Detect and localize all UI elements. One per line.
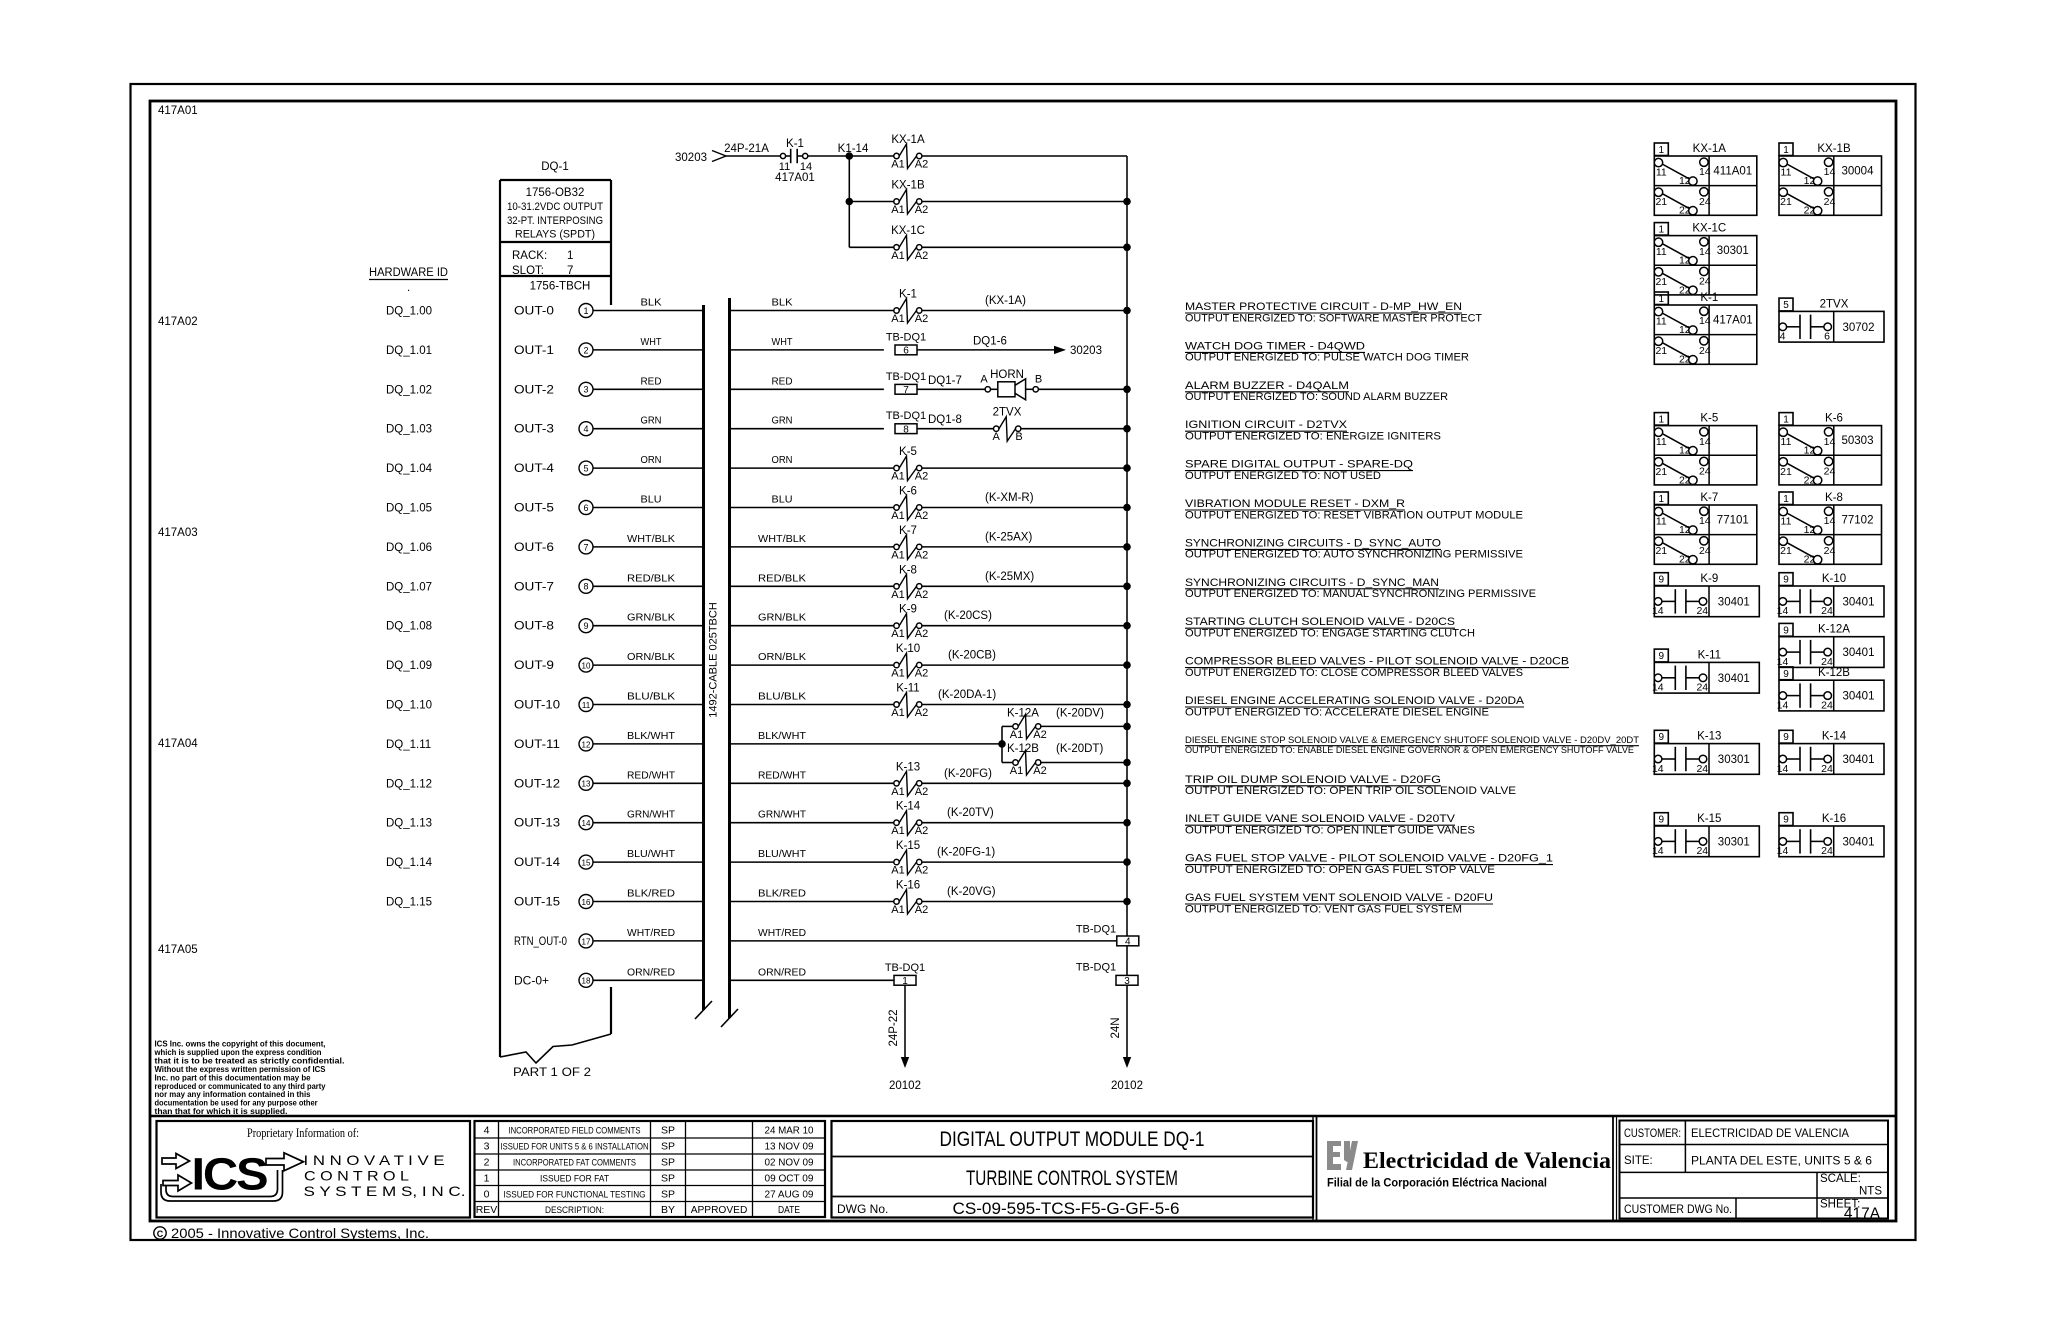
svg-text:OUTPUT ENERGIZED TO: SOUND ALA: OUTPUT ENERGIZED TO: SOUND ALARM BUZZER	[1185, 391, 1448, 403]
svg-text:DQ_1.08: DQ_1.08	[386, 621, 432, 633]
svg-text:K-9: K-9	[899, 604, 917, 616]
svg-text:9: 9	[583, 621, 588, 631]
svg-text:K-12B: K-12B	[1007, 743, 1039, 755]
svg-text:12: 12	[1804, 175, 1816, 187]
svg-text:MASTER PROTECTIVE CIRCUIT -: MASTER PROTECTIVE CIRCUIT - D-MP_HW_EN	[1185, 301, 1462, 313]
svg-text:K-16: K-16	[1822, 813, 1846, 825]
svg-text:OUTPUT ENERGIZED TO: AUTO SYNC: OUTPUT ENERGIZED TO: AUTO SYNCHRONIZING …	[1185, 549, 1523, 561]
svg-text:Proprietary Information of:: Proprietary Information of:	[247, 1125, 359, 1140]
svg-text:OUT-11: OUT-11	[514, 739, 560, 751]
svg-text:24: 24	[1696, 763, 1708, 775]
svg-text:7: 7	[583, 542, 588, 552]
svg-text:NTS: NTS	[1859, 1186, 1882, 1198]
svg-text:K-13: K-13	[1697, 731, 1721, 743]
svg-text:TURBINE CONTROL SYSTEM: TURBINE CONTROL SYSTEM	[966, 1167, 1178, 1190]
svg-text:22: 22	[1804, 474, 1816, 486]
svg-text:27 AUG 09: 27 AUG 09	[765, 1190, 814, 1201]
svg-text:A1: A1	[891, 471, 904, 483]
svg-text:SP: SP	[661, 1157, 675, 1169]
svg-text:GRN/BLK: GRN/BLK	[758, 612, 806, 624]
svg-text:TB-DQ1: TB-DQ1	[1076, 923, 1116, 935]
svg-text:A2: A2	[915, 589, 928, 601]
svg-text:I N N O V A T I V E: I N N O V A T I V E	[304, 1152, 445, 1168]
svg-text:INCORPORATED FIELD COMMENTS: INCORPORATED FIELD COMMENTS	[509, 1126, 641, 1136]
svg-text:BLU: BLU	[641, 494, 662, 506]
svg-text:21: 21	[1655, 345, 1667, 357]
svg-text:DQ_1.04: DQ_1.04	[386, 463, 433, 475]
svg-text:30004: 30004	[1842, 166, 1875, 178]
svg-text:WHT/BLK: WHT/BLK	[627, 533, 675, 545]
svg-text:TB-DQ1: TB-DQ1	[886, 371, 926, 383]
svg-text:22: 22	[1679, 354, 1691, 366]
svg-text:24: 24	[1821, 656, 1833, 668]
svg-text:OUT-14: OUT-14	[514, 857, 561, 869]
svg-text:15: 15	[582, 859, 591, 868]
svg-text:A: A	[980, 373, 988, 385]
svg-text:8: 8	[903, 424, 909, 435]
svg-text:77101: 77101	[1717, 515, 1749, 527]
svg-text:BY: BY	[661, 1204, 675, 1216]
svg-text:22: 22	[1679, 284, 1691, 296]
svg-text:21: 21	[1780, 466, 1792, 478]
svg-text:RED/WHT: RED/WHT	[627, 769, 676, 781]
svg-text:DQ_1.13: DQ_1.13	[386, 818, 432, 830]
svg-text:GAS FUEL STOP VALVE - PILOT SO: GAS FUEL STOP VALVE - PILOT SOLENOID VAL…	[1185, 853, 1553, 865]
svg-text:OUT-1: OUT-1	[514, 345, 554, 357]
svg-text:OUTPUT ENERGIZED TO: SOFTWARE: OUTPUT ENERGIZED TO: SOFTWARE MASTER PRO…	[1185, 312, 1482, 324]
svg-text:24: 24	[1696, 845, 1708, 857]
svg-text:24P-21A: 24P-21A	[724, 143, 769, 155]
svg-text:KX-1B: KX-1B	[1817, 143, 1851, 155]
svg-text:ALARM BUZZER - D4QALM: ALARM BUZZER - D4QALM	[1185, 380, 1349, 392]
svg-text:3: 3	[484, 1141, 490, 1153]
svg-text:PLANTA DEL ESTE, UNITS 5: PLANTA DEL ESTE, UNITS 5 & 6	[1691, 1156, 1872, 1168]
svg-text:21: 21	[1655, 276, 1667, 288]
svg-text:K-10: K-10	[1822, 573, 1846, 585]
svg-text:BLK/RED: BLK/RED	[627, 888, 675, 900]
svg-text:HARDWARE ID: HARDWARE ID	[369, 267, 448, 279]
svg-text:WHT/BLK: WHT/BLK	[758, 533, 806, 545]
svg-text:C O N T R O L: C O N T R O L	[304, 1168, 409, 1184]
svg-text:BLK: BLK	[772, 297, 793, 309]
svg-text:K-1: K-1	[1700, 292, 1718, 304]
svg-text:24: 24	[1821, 845, 1833, 857]
svg-text:12: 12	[582, 740, 591, 749]
svg-text:30401: 30401	[1843, 836, 1875, 848]
svg-text:K-10: K-10	[896, 643, 920, 655]
svg-text:OUT-0: OUT-0	[514, 306, 554, 318]
svg-text:11: 11	[1781, 167, 1792, 179]
svg-text:A1: A1	[1010, 765, 1023, 777]
svg-text:K-6: K-6	[1825, 413, 1843, 425]
svg-text:A2: A2	[1033, 729, 1046, 741]
svg-text:24: 24	[1824, 196, 1836, 208]
svg-text:(K-20CS): (K-20CS)	[944, 610, 992, 622]
svg-text:A1: A1	[891, 904, 904, 916]
svg-text:PART 1 OF 2: PART 1 OF 2	[513, 1067, 591, 1079]
svg-text:22: 22	[1679, 205, 1691, 217]
svg-text:7: 7	[567, 265, 573, 277]
svg-text:RED/WHT: RED/WHT	[758, 769, 807, 781]
svg-text:OUTPUT ENERGIZED TO: RESET VIB: OUTPUT ENERGIZED TO: RESET VIBRATION OUT…	[1185, 509, 1523, 521]
svg-text:INCORPORATED FAT COMMENTS: INCORPORATED FAT COMMENTS	[513, 1158, 636, 1168]
svg-text:9: 9	[1659, 732, 1665, 743]
svg-text:A1: A1	[1010, 729, 1023, 741]
svg-text:(KX-1A): (KX-1A)	[985, 295, 1026, 307]
svg-text:K-8: K-8	[899, 564, 917, 576]
svg-text:DQ1-6: DQ1-6	[973, 335, 1007, 347]
svg-text:(K-20DT): (K-20DT)	[1056, 743, 1103, 755]
svg-text:DQ_1.00: DQ_1.00	[386, 306, 432, 318]
svg-text:OUT-6: OUT-6	[514, 542, 554, 554]
svg-text:DQ_1.03: DQ_1.03	[386, 424, 432, 436]
svg-text:A2: A2	[915, 313, 928, 325]
svg-text:10: 10	[582, 662, 591, 671]
svg-text:DIGITAL OUTPUT MODULE DQ-1: DIGITAL OUTPUT MODULE DQ-1	[940, 1128, 1205, 1151]
svg-text:14: 14	[1777, 763, 1789, 775]
svg-text:A2: A2	[915, 668, 928, 680]
svg-text:2: 2	[484, 1157, 490, 1169]
svg-text:1: 1	[583, 306, 588, 316]
svg-text:24P-22: 24P-22	[888, 1009, 900, 1046]
svg-text:7: 7	[903, 385, 909, 396]
svg-text:SYNCHRONIZING CIRCUITS - D_S: SYNCHRONIZING CIRCUITS - D_SYNC_MAN	[1185, 577, 1439, 589]
svg-text:A2: A2	[915, 510, 928, 522]
svg-text:BLK: BLK	[641, 297, 662, 309]
svg-text:6: 6	[583, 503, 588, 513]
svg-text:OUTPUT ENERGIZED TO: PULSE WAT: OUTPUT ENERGIZED TO: PULSE WATCH DOG TIM…	[1185, 352, 1469, 364]
svg-text:WHT/RED: WHT/RED	[627, 927, 675, 939]
svg-text:14: 14	[1777, 605, 1789, 617]
svg-text:K-14: K-14	[1822, 731, 1847, 743]
svg-text:11: 11	[1656, 167, 1667, 179]
svg-text:SYNCHRONIZING CIRCUITS - D_S: SYNCHRONIZING CIRCUITS - D_SYNC_AUTO	[1185, 537, 1441, 549]
svg-text:1492-CABLE 025TBCH: 1492-CABLE 025TBCH	[708, 602, 720, 718]
svg-text:K-9: K-9	[1700, 573, 1718, 585]
svg-text:DATE: DATE	[778, 1205, 800, 1216]
svg-text:RTN_OUT-0: RTN_OUT-0	[514, 936, 567, 948]
svg-text:APPROVED: APPROVED	[691, 1205, 748, 1216]
svg-text:11: 11	[1656, 316, 1667, 328]
svg-text:(K-20FG): (K-20FG)	[944, 768, 992, 780]
svg-text:14: 14	[1652, 682, 1664, 694]
svg-text:9: 9	[1659, 815, 1665, 826]
svg-text:11: 11	[1781, 436, 1792, 448]
svg-text:2: 2	[583, 345, 588, 355]
svg-text:TB-DQ1: TB-DQ1	[1076, 962, 1116, 974]
svg-text:VIBRATION MODULE RESET - DXM: VIBRATION MODULE RESET - DXM_R	[1185, 498, 1405, 510]
svg-text:32-PT. INTERPOSING: 32-PT. INTERPOSING	[507, 215, 603, 227]
svg-text:A2: A2	[915, 549, 928, 561]
svg-text:411A01: 411A01	[1713, 166, 1752, 178]
svg-text:K-14: K-14	[896, 801, 921, 813]
svg-text:A2: A2	[915, 825, 928, 837]
svg-text:4: 4	[1780, 331, 1786, 343]
svg-text:GRN/WHT: GRN/WHT	[627, 809, 676, 821]
svg-text:RACK:: RACK:	[512, 250, 547, 262]
svg-text:A1: A1	[891, 786, 904, 798]
svg-text:DIESEL ENGINE ACCELERATING SOL: DIESEL ENGINE ACCELERATING SOLENOID VALV…	[1185, 695, 1525, 707]
svg-text:OUT-10: OUT-10	[514, 700, 560, 712]
svg-text:9: 9	[1783, 815, 1789, 826]
svg-text:A2: A2	[915, 865, 928, 877]
svg-text:22: 22	[1679, 554, 1691, 566]
svg-text:WATCH DOG TIMER - D4QWD: WATCH DOG TIMER - D4QWD	[1185, 340, 1365, 352]
svg-text:INLET GUIDE VANE SOLENOID VALV: INLET GUIDE VANE SOLENOID VALVE - D20TV	[1185, 813, 1456, 825]
svg-text:417A04: 417A04	[158, 738, 198, 750]
svg-text:14: 14	[1777, 845, 1789, 857]
svg-text:ORN/BLK: ORN/BLK	[627, 651, 675, 663]
svg-text:K-8: K-8	[1825, 492, 1843, 504]
svg-text:22: 22	[1804, 554, 1816, 566]
svg-text:CS-09-595-TCS-F5-G-GF-5-6: CS-09-595-TCS-F5-G-GF-5-6	[953, 1200, 1180, 1218]
svg-text:K-1: K-1	[899, 289, 917, 301]
svg-text:417A05: 417A05	[158, 944, 198, 956]
svg-text:BLU/WHT: BLU/WHT	[758, 848, 807, 860]
svg-text:77102: 77102	[1842, 515, 1874, 527]
svg-text:GRN: GRN	[641, 415, 662, 427]
svg-text:BLU/BLK: BLU/BLK	[627, 691, 675, 703]
svg-text:14: 14	[1652, 605, 1664, 617]
svg-text:KX-1C: KX-1C	[1692, 223, 1726, 235]
svg-text:ORN: ORN	[772, 454, 793, 466]
svg-text:OUTPUT ENERGIZED TO: OPEN TRIP: OUTPUT ENERGIZED TO: OPEN TRIP OIL SOLEN…	[1185, 785, 1516, 797]
svg-text:RED/BLK: RED/BLK	[758, 572, 806, 584]
svg-text:WHT/RED: WHT/RED	[758, 927, 806, 939]
svg-text:12: 12	[1679, 324, 1691, 336]
svg-text:14: 14	[1699, 315, 1711, 327]
svg-text:S Y S T E M S, I N C.: S Y S T E M S, I N C.	[304, 1183, 466, 1199]
svg-text:K-7: K-7	[1700, 492, 1718, 504]
svg-text:OUTPUT ENERGIZED TO: VENT GAS: OUTPUT ENERGIZED TO: VENT GAS FUEL SYSTE…	[1185, 903, 1462, 915]
svg-text:DQ_1.10: DQ_1.10	[386, 700, 432, 712]
svg-text:13: 13	[582, 780, 591, 789]
svg-text:K-6: K-6	[899, 486, 917, 498]
svg-text:K-15: K-15	[896, 840, 920, 852]
svg-text:20102: 20102	[889, 1080, 921, 1092]
svg-text:24: 24	[1696, 605, 1708, 617]
svg-text:RED: RED	[772, 375, 793, 387]
svg-text:9: 9	[1783, 575, 1789, 586]
svg-text:SP: SP	[661, 1125, 675, 1137]
svg-text:SP: SP	[661, 1173, 675, 1185]
svg-text:B: B	[1015, 431, 1022, 443]
svg-text:12: 12	[1804, 445, 1816, 457]
svg-text:DWG No.: DWG No.	[837, 1202, 888, 1216]
svg-text:A1: A1	[891, 589, 904, 601]
svg-text:1: 1	[567, 250, 573, 262]
svg-text:GRN/WHT: GRN/WHT	[758, 809, 807, 821]
svg-text:K-7: K-7	[899, 525, 917, 537]
svg-text:1: 1	[484, 1173, 490, 1185]
svg-text:Electricidad de Valencia: Electricidad de Valencia	[1363, 1148, 1612, 1173]
svg-text:30401: 30401	[1843, 647, 1875, 659]
svg-text:A1: A1	[891, 865, 904, 877]
svg-text:9: 9	[1783, 669, 1789, 680]
svg-text:K-1: K-1	[786, 138, 804, 150]
svg-text:30401: 30401	[1718, 673, 1750, 685]
svg-text:12: 12	[1804, 524, 1816, 536]
svg-text:4: 4	[484, 1125, 490, 1137]
svg-text:DQ-1: DQ-1	[541, 161, 568, 173]
svg-text:A1: A1	[891, 825, 904, 837]
svg-text:14: 14	[1824, 166, 1836, 178]
svg-text:ORN/BLK: ORN/BLK	[758, 651, 806, 663]
svg-text:OUT-7: OUT-7	[514, 581, 554, 593]
svg-text:417A01: 417A01	[1713, 315, 1753, 327]
svg-text:11: 11	[1656, 436, 1667, 448]
svg-text:A1: A1	[891, 159, 904, 171]
svg-text:5: 5	[583, 464, 588, 474]
svg-text:BLU: BLU	[772, 494, 793, 506]
svg-text:417A03: 417A03	[158, 527, 198, 539]
svg-text:1: 1	[1659, 145, 1665, 156]
svg-text:(K-25AX): (K-25AX)	[985, 531, 1032, 543]
svg-text:K-5: K-5	[1700, 413, 1718, 425]
svg-text:50303: 50303	[1842, 435, 1874, 447]
svg-text:6: 6	[903, 346, 909, 357]
svg-text:OUTPUT ENERGIZED TO: ACCELERAT: OUTPUT ENERGIZED TO: ACCELERATE DIESEL E…	[1185, 706, 1489, 718]
svg-text:1: 1	[1659, 224, 1665, 235]
svg-text:COMPRESSOR BLEED VALVES - PILO: COMPRESSOR BLEED VALVES - PILOT SOLENOID…	[1185, 656, 1569, 668]
svg-text:HORN: HORN	[990, 369, 1024, 381]
svg-text:.: .	[407, 282, 410, 294]
svg-text:A: A	[993, 431, 1001, 443]
svg-text:OUT-13: OUT-13	[514, 818, 560, 830]
svg-text:1756-OB32: 1756-OB32	[526, 187, 585, 199]
svg-text:K-13: K-13	[896, 761, 920, 773]
svg-text:OUTPUT ENERGIZED TO: NOT USED: OUTPUT ENERGIZED TO: NOT USED	[1185, 470, 1381, 482]
svg-text:K-11: K-11	[1698, 649, 1721, 661]
svg-text:CUSTOMER DWG No.: CUSTOMER DWG No.	[1624, 1204, 1732, 1216]
svg-text:K1-14: K1-14	[838, 143, 869, 155]
svg-text:OUT-3: OUT-3	[514, 424, 554, 436]
svg-text:ORN/RED: ORN/RED	[758, 966, 806, 978]
svg-text:SLOT:: SLOT:	[512, 265, 544, 277]
svg-text:GRN/BLK: GRN/BLK	[627, 612, 675, 624]
svg-text:(K-20FG-1): (K-20FG-1)	[937, 847, 995, 859]
svg-text:20102: 20102	[1111, 1080, 1143, 1092]
svg-text:2005 - Innovative Control: 2005 - Innovative Control Systems, Inc.	[171, 1225, 429, 1241]
svg-text:DQ_1.07: DQ_1.07	[386, 581, 432, 593]
svg-text:A2: A2	[915, 159, 928, 171]
svg-text:A1: A1	[891, 628, 904, 640]
svg-text:SP: SP	[661, 1141, 675, 1153]
svg-text:A2: A2	[915, 904, 928, 916]
svg-text:ORN/RED: ORN/RED	[627, 966, 675, 978]
svg-text:B: B	[1035, 373, 1042, 385]
svg-text:9: 9	[1783, 625, 1789, 636]
svg-text:OUT-2: OUT-2	[514, 384, 554, 396]
svg-text:KX-1A: KX-1A	[891, 134, 925, 146]
svg-text:BLU/BLK: BLU/BLK	[758, 691, 806, 703]
svg-text:24: 24	[1824, 465, 1836, 477]
svg-text:KX-1B: KX-1B	[891, 180, 925, 192]
svg-text:4: 4	[583, 424, 588, 434]
svg-text:21: 21	[1655, 196, 1667, 208]
svg-text:9: 9	[1659, 651, 1665, 662]
svg-text:BLK/WHT: BLK/WHT	[627, 730, 676, 742]
svg-text:A1: A1	[891, 250, 904, 262]
svg-text:24 MAR 10: 24 MAR 10	[765, 1126, 814, 1137]
svg-text:(K-20DA-1): (K-20DA-1)	[938, 689, 996, 701]
svg-text:ORN: ORN	[641, 454, 662, 466]
svg-text:10-31.2VDC OUTPUT: 10-31.2VDC OUTPUT	[507, 201, 603, 213]
svg-text:A2: A2	[915, 786, 928, 798]
svg-text:24: 24	[1699, 465, 1711, 477]
svg-text:24: 24	[1699, 345, 1711, 357]
svg-text:OUTPUT ENERGIZED TO: ENGAGE ST: OUTPUT ENERGIZED TO: ENGAGE STARTING CLU…	[1185, 628, 1475, 640]
svg-text:A1: A1	[891, 549, 904, 561]
svg-text:DQ_1.12: DQ_1.12	[386, 778, 432, 790]
svg-text:(K-20DV): (K-20DV)	[1056, 707, 1104, 719]
svg-text:A2: A2	[915, 628, 928, 640]
svg-text:14: 14	[1699, 436, 1711, 448]
svg-text:ELECTRICIDAD DE VALENCIA: ELECTRICIDAD DE VALENCIA	[1691, 1128, 1849, 1140]
svg-text:02 NOV 09: 02 NOV 09	[765, 1158, 814, 1169]
svg-text:GRN: GRN	[772, 415, 793, 427]
svg-text:C: C	[157, 1229, 164, 1239]
svg-text:OUT-4: OUT-4	[514, 463, 555, 475]
svg-text:ICS: ICS	[192, 1149, 268, 1200]
svg-text:K-5: K-5	[899, 446, 917, 458]
svg-text:14: 14	[1824, 515, 1836, 527]
svg-text:A1: A1	[891, 510, 904, 522]
svg-text:22: 22	[1804, 205, 1816, 217]
svg-text:DQ_1.09: DQ_1.09	[386, 660, 432, 672]
svg-text:RED/BLK: RED/BLK	[627, 572, 675, 584]
svg-text:30203: 30203	[675, 152, 707, 164]
svg-text:9: 9	[1783, 732, 1789, 743]
svg-text:2TVX: 2TVX	[993, 407, 1022, 419]
svg-text:DQ_1.15: DQ_1.15	[386, 897, 432, 909]
svg-text:TB-DQ1: TB-DQ1	[886, 331, 926, 343]
svg-text:21: 21	[1655, 466, 1667, 478]
svg-text:K-12A: K-12A	[1007, 707, 1039, 719]
svg-text:A1: A1	[891, 204, 904, 216]
svg-text:21: 21	[1780, 196, 1792, 208]
svg-text:2TVX: 2TVX	[1820, 298, 1849, 310]
svg-text:30401: 30401	[1843, 596, 1875, 608]
svg-text:30401: 30401	[1843, 691, 1875, 703]
svg-text:12: 12	[1679, 175, 1691, 187]
svg-text:DC-0+: DC-0+	[514, 975, 549, 987]
svg-text:DESCRIPTION:: DESCRIPTION:	[545, 1205, 604, 1215]
svg-text:1: 1	[1659, 494, 1665, 505]
svg-text:K-11: K-11	[896, 683, 919, 695]
svg-text:30702: 30702	[1843, 322, 1875, 334]
svg-text:12: 12	[1679, 445, 1691, 457]
svg-text:09 OCT 09: 09 OCT 09	[765, 1174, 814, 1185]
svg-text:RED: RED	[641, 375, 662, 387]
svg-text:14: 14	[1824, 436, 1836, 448]
svg-text:18: 18	[582, 977, 591, 986]
svg-text:17: 17	[582, 937, 591, 946]
svg-text:TB-DQ1: TB-DQ1	[886, 410, 926, 422]
svg-text:OUT-5: OUT-5	[514, 503, 554, 515]
svg-text:(K-XM-R): (K-XM-R)	[985, 492, 1034, 504]
svg-text:WHT: WHT	[641, 336, 663, 348]
svg-text:CUSTOMER:: CUSTOMER:	[1624, 1128, 1681, 1140]
svg-text:12: 12	[1679, 524, 1691, 536]
svg-text:ISSUED FOR FUNCTIONAL TESTING: ISSUED FOR FUNCTIONAL TESTING	[504, 1190, 646, 1200]
svg-text:1: 1	[1659, 294, 1665, 305]
svg-text:TB-DQ1: TB-DQ1	[885, 962, 925, 974]
svg-text:OUT-12: OUT-12	[514, 778, 560, 790]
svg-text:Filial de la Corporación Eléct: Filial de la Corporación Eléctrica Nacio…	[1327, 1176, 1547, 1190]
svg-text:8: 8	[583, 582, 588, 592]
svg-text:(K-20CB): (K-20CB)	[948, 650, 996, 662]
